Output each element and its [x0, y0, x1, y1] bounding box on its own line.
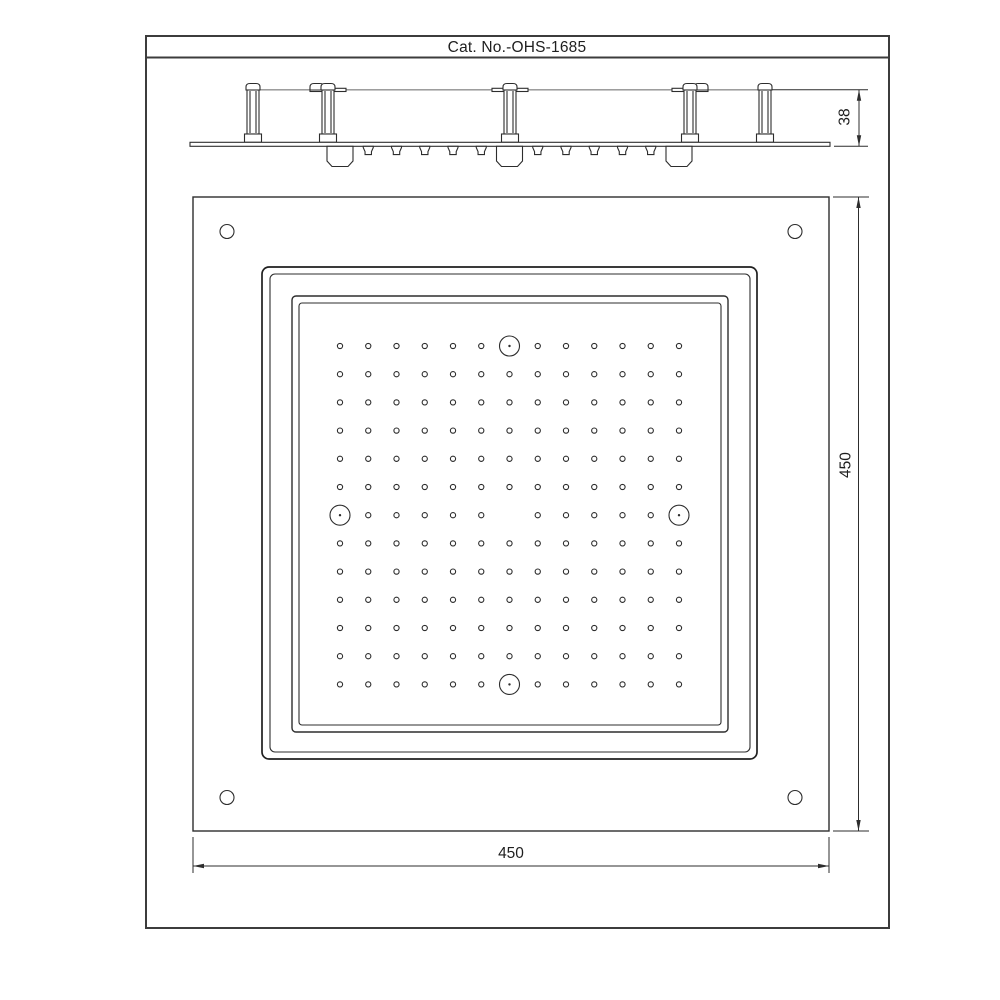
spray-hole	[479, 597, 484, 602]
spray-hole	[422, 456, 427, 461]
spray-hole	[676, 484, 681, 489]
small-nozzle	[561, 146, 571, 154]
spray-hole	[450, 654, 455, 659]
spray-hole	[479, 654, 484, 659]
spray-hole	[479, 456, 484, 461]
spray-hole	[394, 343, 399, 348]
spray-hole	[450, 428, 455, 433]
spray-hole	[450, 513, 455, 518]
post-shaft	[759, 90, 771, 134]
spray-hole	[394, 569, 399, 574]
side-view-posts	[245, 84, 774, 143]
spray-hole	[450, 597, 455, 602]
spray-hole	[648, 400, 653, 405]
spray-hole	[479, 682, 484, 687]
spray-face-inner-edge	[299, 303, 721, 725]
function-nozzle-center-dot	[508, 345, 510, 347]
mounting-post	[320, 84, 337, 143]
spray-hole	[507, 541, 512, 546]
spray-hole	[479, 513, 484, 518]
water-cup	[497, 146, 523, 166]
spray-hole	[337, 456, 342, 461]
spray-hole	[620, 625, 625, 630]
spray-hole	[648, 456, 653, 461]
spray-hole	[535, 343, 540, 348]
spray-hole	[563, 569, 568, 574]
spray-hole	[563, 428, 568, 433]
arrowhead-down	[857, 135, 861, 146]
spray-hole	[535, 682, 540, 687]
function-nozzle-center-dot	[678, 514, 680, 516]
spray-hole	[563, 484, 568, 489]
spray-hole	[592, 625, 597, 630]
spray-hole	[337, 428, 342, 433]
spray-hole	[676, 428, 681, 433]
spray-hole	[422, 569, 427, 574]
spray-hole	[366, 343, 371, 348]
spray-hole	[676, 597, 681, 602]
small-nozzle	[448, 146, 458, 154]
spray-hole	[676, 343, 681, 348]
spray-hole	[535, 654, 540, 659]
spray-hole	[366, 682, 371, 687]
plan-view	[193, 197, 829, 831]
spray-hole	[366, 625, 371, 630]
spray-hole	[422, 597, 427, 602]
spray-hole	[422, 400, 427, 405]
spray-hole	[592, 513, 597, 518]
spray-hole	[507, 597, 512, 602]
drawing-sheet: Cat. No.-OHS-1685 38	[0, 0, 1000, 1000]
spray-hole	[479, 569, 484, 574]
spray-hole	[676, 569, 681, 574]
spray-hole	[592, 541, 597, 546]
side-view	[190, 84, 830, 167]
small-nozzle	[363, 146, 373, 154]
spray-hole	[620, 343, 625, 348]
spray-hole	[676, 541, 681, 546]
spray-hole	[592, 597, 597, 602]
spray-hole	[507, 372, 512, 377]
spray-hole	[535, 400, 540, 405]
spray-hole	[394, 625, 399, 630]
spray-hole	[676, 372, 681, 377]
small-nozzle	[392, 146, 402, 154]
spray-hole	[648, 372, 653, 377]
spray-hole	[535, 569, 540, 574]
spray-hole	[366, 569, 371, 574]
spray-hole	[337, 625, 342, 630]
spray-hole	[394, 513, 399, 518]
spray-hole	[366, 400, 371, 405]
post-base-collar	[502, 134, 519, 142]
spray-hole	[676, 682, 681, 687]
spray-hole	[337, 569, 342, 574]
spray-hole	[535, 513, 540, 518]
spray-hole	[535, 541, 540, 546]
spray-hole	[620, 569, 625, 574]
corner-screw-hole	[220, 225, 234, 239]
spray-hole	[507, 569, 512, 574]
spray-hole	[394, 654, 399, 659]
post-cap	[321, 84, 335, 91]
spray-hole	[648, 343, 653, 348]
dimension-38: 38	[772, 90, 868, 147]
spray-hole	[563, 372, 568, 377]
post-cap	[758, 84, 772, 91]
spray-hole	[676, 456, 681, 461]
spray-hole	[366, 513, 371, 518]
catalog-number-title: Cat. No.-OHS-1685	[448, 39, 587, 56]
spray-hole	[366, 372, 371, 377]
spray-hole	[422, 372, 427, 377]
spray-hole	[394, 428, 399, 433]
spray-hole	[337, 682, 342, 687]
post-base-collar	[245, 134, 262, 142]
spray-hole	[337, 372, 342, 377]
spray-hole	[592, 343, 597, 348]
spray-hole	[676, 400, 681, 405]
spray-hole	[337, 541, 342, 546]
spray-hole	[507, 484, 512, 489]
spray-hole	[592, 456, 597, 461]
spray-hole	[366, 541, 371, 546]
spray-hole	[422, 682, 427, 687]
small-nozzle	[589, 146, 599, 154]
spray-hole	[450, 456, 455, 461]
post-shaft	[247, 90, 259, 134]
spray-hole	[563, 400, 568, 405]
spray-hole	[563, 625, 568, 630]
mounting-post	[757, 84, 774, 143]
spray-hole	[507, 625, 512, 630]
spray-hole	[422, 343, 427, 348]
spray-hole	[450, 569, 455, 574]
spray-hole	[648, 625, 653, 630]
corner-screw-hole	[220, 791, 234, 805]
spray-hole	[450, 372, 455, 377]
corner-screw-hole	[788, 791, 802, 805]
arrowhead-left	[193, 864, 204, 868]
post-cap	[246, 84, 260, 91]
post-shaft	[322, 90, 334, 134]
spray-hole	[337, 654, 342, 659]
mounting-post	[502, 84, 519, 143]
spray-hole	[479, 372, 484, 377]
spray-hole	[563, 682, 568, 687]
corner-screw-hole	[788, 225, 802, 239]
water-cup	[666, 146, 692, 166]
spray-hole	[479, 400, 484, 405]
small-nozzle	[646, 146, 656, 154]
spray-hole	[563, 343, 568, 348]
spray-hole	[648, 484, 653, 489]
spray-hole	[648, 541, 653, 546]
post-cap	[683, 84, 697, 91]
spray-hole	[592, 372, 597, 377]
spray-hole	[592, 654, 597, 659]
spray-hole	[620, 400, 625, 405]
spray-hole	[648, 654, 653, 659]
post-shaft	[684, 90, 696, 134]
mounting-post	[682, 84, 699, 143]
spray-hole	[620, 484, 625, 489]
small-nozzle	[618, 146, 628, 154]
spray-hole	[563, 541, 568, 546]
spray-hole	[394, 541, 399, 546]
spray-hole	[479, 541, 484, 546]
dim-label-38: 38	[837, 108, 854, 125]
spray-hole	[676, 654, 681, 659]
spray-hole	[535, 484, 540, 489]
spray-hole	[535, 597, 540, 602]
spray-hole	[620, 541, 625, 546]
spray-hole	[479, 484, 484, 489]
spray-hole	[450, 541, 455, 546]
post-base-collar	[320, 134, 337, 142]
spray-hole	[450, 484, 455, 489]
arrowhead-right	[818, 864, 829, 868]
spray-hole	[450, 682, 455, 687]
spray-hole	[648, 513, 653, 518]
post-base-collar	[682, 134, 699, 142]
spray-hole	[592, 484, 597, 489]
spray-hole	[563, 654, 568, 659]
post-shaft	[504, 90, 516, 134]
spray-hole	[676, 625, 681, 630]
spray-hole	[535, 428, 540, 433]
spray-hole	[479, 428, 484, 433]
spray-hole	[535, 625, 540, 630]
technical-drawing: Cat. No.-OHS-1685 38	[0, 0, 1000, 1000]
spray-hole	[620, 654, 625, 659]
spray-hole	[479, 625, 484, 630]
spray-hole	[450, 625, 455, 630]
spray-hole	[366, 428, 371, 433]
mounting-post	[245, 84, 262, 143]
small-nozzle	[533, 146, 543, 154]
spray-hole	[563, 597, 568, 602]
spray-hole	[563, 513, 568, 518]
spray-hole	[620, 682, 625, 687]
spray-hole	[450, 400, 455, 405]
small-nozzle	[420, 146, 430, 154]
spray-hole	[366, 456, 371, 461]
spray-hole	[394, 484, 399, 489]
spray-hole	[507, 400, 512, 405]
spray-hole	[394, 597, 399, 602]
side-view-cups	[327, 146, 692, 166]
spray-hole	[592, 682, 597, 687]
function-nozzle-center-dot	[508, 683, 510, 685]
spray-hole	[479, 343, 484, 348]
arrowhead-up	[857, 90, 861, 101]
spray-hole	[648, 682, 653, 687]
spray-hole	[620, 513, 625, 518]
post-base-collar	[757, 134, 774, 142]
spray-hole	[422, 541, 427, 546]
spray-hole	[507, 456, 512, 461]
arrowhead-up	[856, 197, 860, 208]
spray-hole	[366, 484, 371, 489]
spray-hole	[563, 456, 568, 461]
spray-hole	[394, 372, 399, 377]
spray-hole	[366, 654, 371, 659]
dim-label-height-450: 450	[838, 452, 855, 478]
spray-hole	[535, 372, 540, 377]
spray-hole	[422, 513, 427, 518]
spray-hole	[507, 428, 512, 433]
spray-hole	[620, 428, 625, 433]
spray-hole	[507, 654, 512, 659]
spray-hole	[337, 484, 342, 489]
spray-hole	[394, 456, 399, 461]
spray-hole	[422, 654, 427, 659]
spray-hole	[394, 682, 399, 687]
spray-hole	[422, 484, 427, 489]
shower-plate-side-profile	[190, 142, 830, 146]
arrowhead-down	[856, 820, 860, 831]
spray-hole	[620, 372, 625, 377]
spray-hole	[592, 400, 597, 405]
spray-hole	[422, 625, 427, 630]
function-nozzle-center-dot	[339, 514, 341, 516]
spray-hole	[648, 569, 653, 574]
spray-hole	[648, 597, 653, 602]
spray-hole	[535, 456, 540, 461]
spray-hole	[592, 428, 597, 433]
dimension-450-right: 450	[833, 197, 869, 831]
spray-hole	[422, 428, 427, 433]
dim-label-width-450: 450	[498, 845, 524, 862]
spray-hole	[620, 456, 625, 461]
dimension-450-bottom: 450	[193, 837, 829, 873]
spray-hole	[337, 343, 342, 348]
spray-hole	[620, 597, 625, 602]
water-cup	[327, 146, 353, 166]
spray-hole	[394, 400, 399, 405]
spray-hole	[592, 569, 597, 574]
spray-hole	[337, 400, 342, 405]
spray-hole	[366, 597, 371, 602]
post-cap	[503, 84, 517, 91]
spray-hole	[337, 597, 342, 602]
small-nozzle	[476, 146, 486, 154]
spray-hole	[648, 428, 653, 433]
spray-hole	[450, 343, 455, 348]
